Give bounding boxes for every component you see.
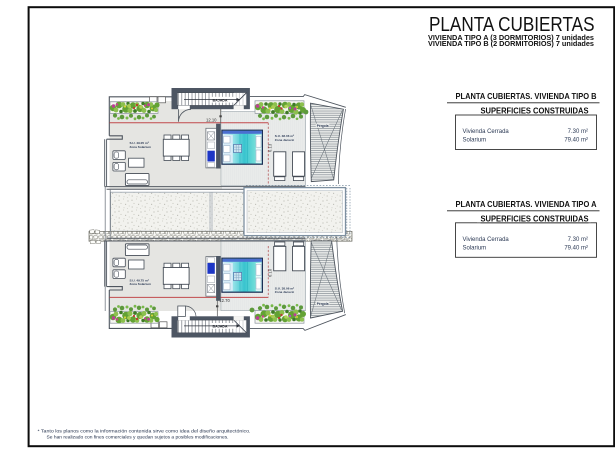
svg-text:SUPERFICIES CONSTRUIDAS: SUPERFICIES CONSTRUIDAS [481,214,590,223]
svg-text:Zona Jacuzzi: Zona Jacuzzi [275,290,294,294]
svg-text:7.30 m²: 7.30 m² [568,237,588,243]
svg-text:PLANTA CUBIERTAS. VIVIENDA TIP: PLANTA CUBIERTAS. VIVIENDA TIPO B [456,92,597,101]
svg-text:Solarium: Solarium [463,245,487,251]
svg-text:SUPERFICIES CONSTRUIDAS: SUPERFICIES CONSTRUIDAS [481,107,590,116]
svg-text:7.30 m²: 7.30 m² [568,129,588,135]
svg-text:PLANTA CUBIERTAS. VIVIENDA TIP: PLANTA CUBIERTAS. VIVIENDA TIPO A [456,200,597,209]
svg-text:VIVIENDA TIPO B (2 DORMITORIOS: VIVIENDA TIPO B (2 DORMITORIOS) 7 unidad… [428,39,594,48]
svg-text:Solarium: Solarium [463,138,487,144]
svg-text:* Tanto los planos como la inf: * Tanto los planos como la información c… [38,429,251,435]
svg-text:6.13: 6.13 [268,143,273,152]
svg-text:79.40 m²: 79.40 m² [564,138,588,144]
svg-text:Vivienda Cerrada: Vivienda Cerrada [463,237,510,243]
svg-text:BAJADA: BAJADA [213,98,228,102]
svg-text:Pérgola: Pérgola [317,302,329,306]
svg-text:BAJADA: BAJADA [213,325,228,329]
svg-text:Vivienda Cerrada: Vivienda Cerrada [463,129,510,135]
svg-text:Zona Solarium: Zona Solarium [130,282,152,286]
svg-text:Zona Solarium: Zona Solarium [130,145,152,149]
svg-text:12.70: 12.70 [219,298,230,303]
svg-text:79.40 m²: 79.40 m² [564,245,588,251]
svg-text:Zona Jacuzzi: Zona Jacuzzi [275,138,294,142]
svg-text:Pérgola: Pérgola [317,124,329,128]
svg-text:6.10: 6.10 [268,268,273,277]
svg-text:12.10: 12.10 [206,117,217,122]
svg-text:Se han realizado con fines com: Se han realizado con fines comerciales y… [47,434,229,440]
